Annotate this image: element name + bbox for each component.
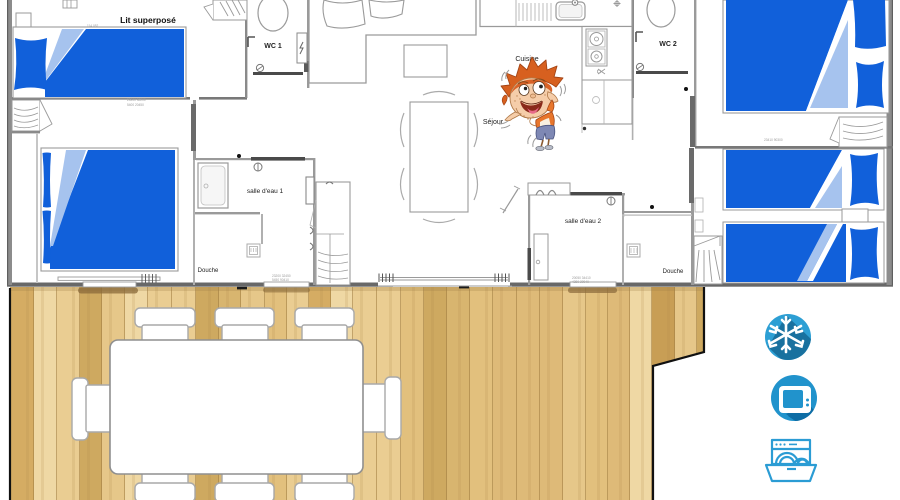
svg-text:23900 30200: 23900 30200 (127, 98, 146, 102)
svg-text:salle d'eau 1: salle d'eau 1 (247, 188, 284, 195)
svg-text:Lit superposé: Lit superposé (120, 15, 176, 25)
svg-text:23410 90300: 23410 90300 (764, 138, 783, 142)
svg-text:WC 1: WC 1 (264, 43, 282, 50)
svg-text:5400 20450: 5400 20450 (127, 103, 144, 107)
svg-text:5450 90410: 5450 90410 (272, 278, 289, 282)
svg-text:4380 20940: 4380 20940 (572, 280, 589, 284)
svg-text:Douche: Douche (198, 268, 219, 274)
svg-text:salle d'eau 2: salle d'eau 2 (565, 218, 602, 225)
svg-text:Séjour: Séjour (483, 119, 504, 126)
svg-text:Douche: Douche (663, 269, 684, 275)
svg-text:WC 2: WC 2 (659, 41, 677, 48)
